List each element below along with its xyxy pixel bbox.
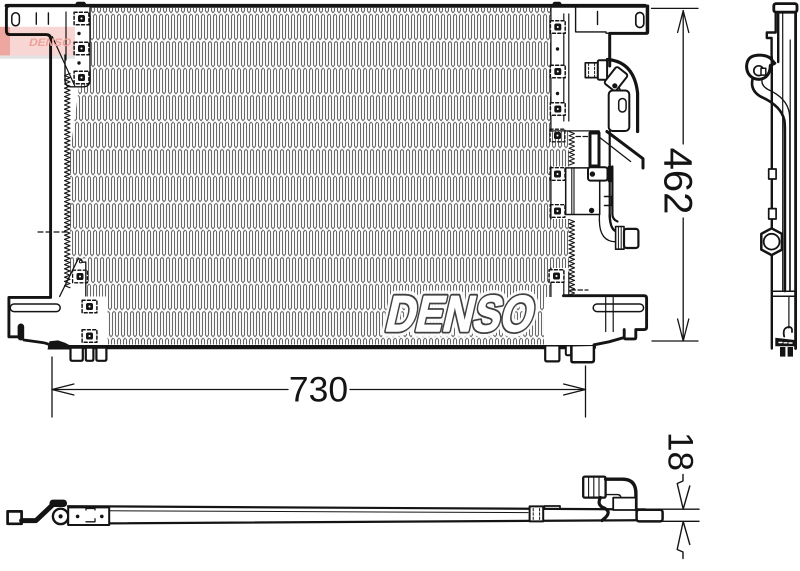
svg-text:DENSO: DENSO bbox=[381, 286, 541, 342]
svg-text:730: 730 bbox=[289, 370, 348, 410]
svg-text:18: 18 bbox=[661, 432, 700, 471]
svg-text:462: 462 bbox=[656, 148, 700, 215]
svg-text:DENSO: DENSO bbox=[28, 37, 73, 49]
